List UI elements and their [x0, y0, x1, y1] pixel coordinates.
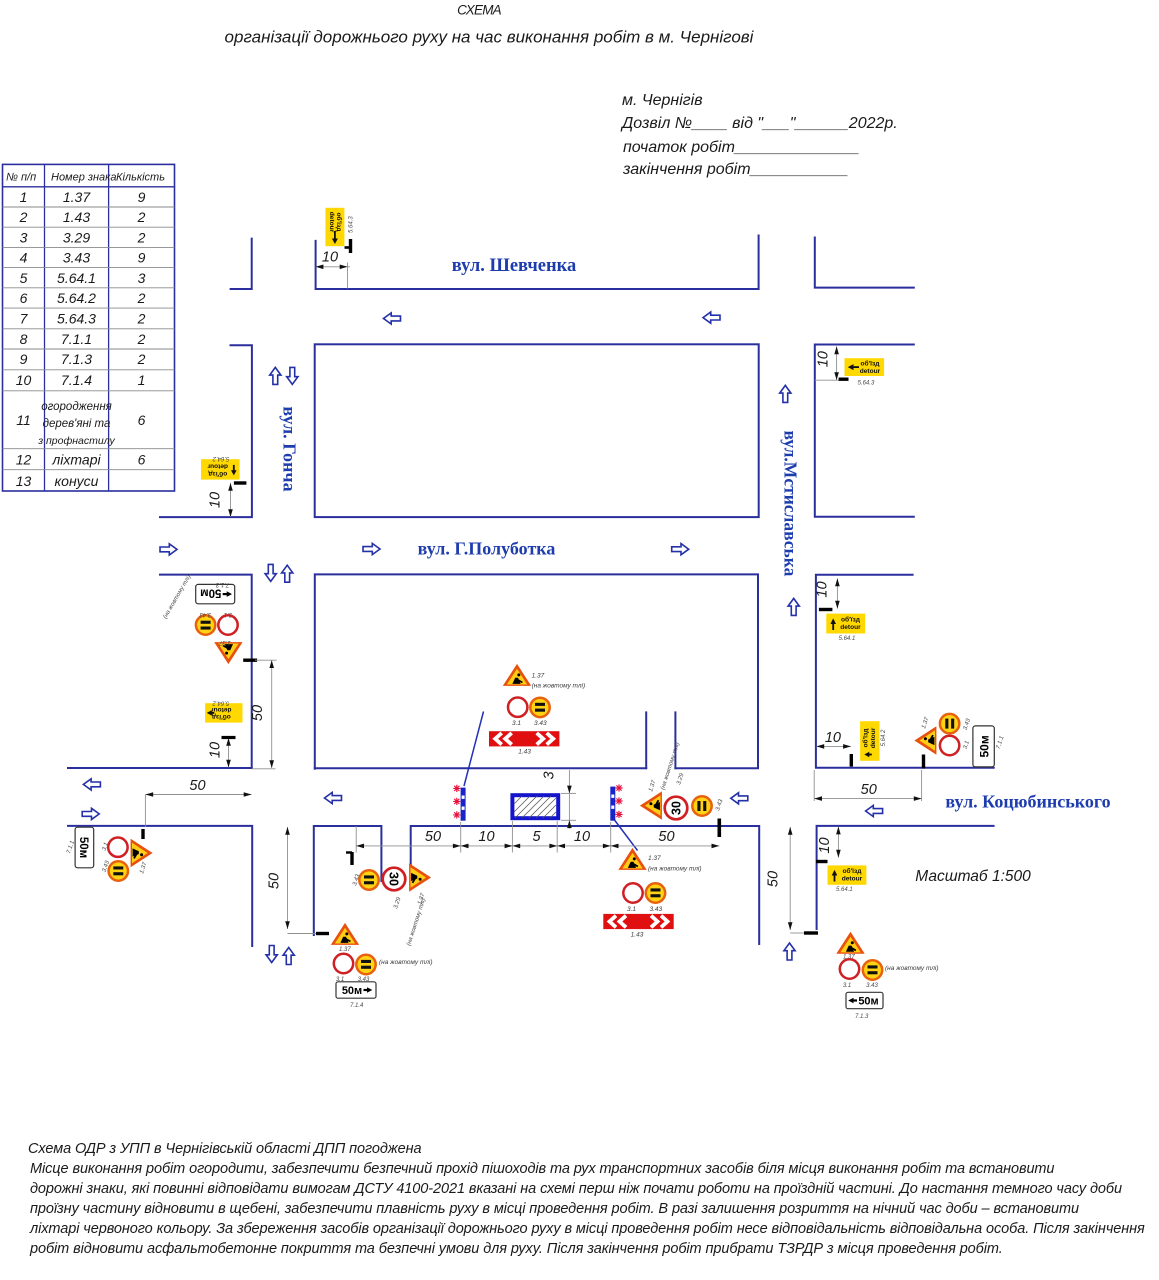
svg-text:Дозвіл №____ від "___"______2: Дозвіл №____ від "___"______2022р.	[620, 115, 898, 132]
svg-text:(на жовтому тлі): (на жовтому тлі)	[532, 682, 586, 690]
svg-text:10: 10	[574, 829, 590, 845]
svg-text:5.64.1: 5.64.1	[836, 887, 853, 893]
svg-text:вул. Коцюбинського: вул. Коцюбинського	[945, 792, 1110, 812]
svg-text:5.64.3: 5.64.3	[57, 310, 96, 326]
svg-text:організації дорожнього руху на: організації дорожнього руху на час викон…	[225, 28, 755, 47]
svg-text:1.37: 1.37	[532, 673, 545, 680]
svg-text:Місце виконання робіт огородит: Місце виконання робіт огородити, забезпе…	[30, 1161, 1054, 1177]
svg-text:50м: 50м	[342, 985, 362, 997]
svg-text:ліхтарі червоного кольору. За: ліхтарі червоного кольору. За збереження…	[29, 1221, 1145, 1237]
svg-text:дорожні знаки, які повинні від: дорожні знаки, які повинні відповідати в…	[30, 1181, 1122, 1197]
svg-text:2: 2	[19, 209, 28, 225]
svg-text:2: 2	[137, 229, 146, 245]
svg-text:5.64.1: 5.64.1	[839, 636, 856, 642]
svg-text:50: 50	[766, 871, 782, 887]
svg-text:вул.Мстиславська: вул.Мстиславська	[781, 430, 801, 576]
svg-text:об'їзд: об'їзд	[335, 213, 343, 233]
svg-text:50: 50	[250, 705, 266, 721]
svg-text:№ п/п: № п/п	[6, 172, 36, 184]
svg-text:вул. Шевченка: вул. Шевченка	[452, 256, 577, 276]
svg-text:3.1: 3.1	[627, 906, 636, 913]
svg-text:detour: detour	[328, 212, 335, 233]
svg-text:7.1.4: 7.1.4	[350, 1003, 364, 1009]
svg-text:4: 4	[20, 250, 28, 266]
svg-text:10: 10	[817, 837, 833, 853]
svg-text:Схема ОДР з УПП в Чернігівські: Схема ОДР з УПП в Чернігівській області …	[28, 1141, 422, 1157]
svg-text:1.43: 1.43	[631, 932, 644, 939]
svg-text:7.1.3: 7.1.3	[855, 1014, 869, 1020]
svg-text:Кількість: Кількість	[116, 172, 165, 184]
svg-text:50м: 50м	[858, 996, 878, 1008]
svg-text:detour: detour	[870, 727, 877, 748]
svg-text:detour: detour	[840, 624, 861, 631]
svg-text:3.1: 3.1	[224, 611, 232, 617]
svg-text:50м: 50м	[77, 837, 89, 858]
svg-text:об'їзд: об'їзд	[843, 867, 863, 875]
svg-text:огородження: огородження	[41, 401, 112, 413]
svg-text:detour: detour	[207, 463, 228, 470]
svg-text:9: 9	[138, 250, 146, 266]
svg-text:13: 13	[16, 473, 32, 489]
svg-text:50: 50	[658, 829, 674, 845]
svg-text:50м: 50м	[200, 587, 221, 599]
svg-text:12: 12	[16, 452, 32, 468]
svg-text:5.64.2: 5.64.2	[212, 700, 229, 706]
svg-text:9: 9	[20, 351, 28, 367]
svg-text:10: 10	[208, 742, 224, 758]
svg-text:10: 10	[16, 372, 32, 388]
svg-text:3.43: 3.43	[534, 720, 547, 727]
svg-text:10: 10	[322, 250, 338, 266]
svg-text:7.1.3: 7.1.3	[61, 351, 92, 367]
svg-text:10: 10	[825, 730, 841, 746]
svg-text:6: 6	[20, 290, 28, 306]
svg-text:50: 50	[425, 829, 441, 845]
svg-text:2: 2	[137, 351, 146, 367]
svg-text:5.64.2: 5.64.2	[212, 455, 229, 461]
svg-text:1.37: 1.37	[648, 855, 661, 862]
svg-text:3: 3	[20, 229, 28, 245]
svg-text:об'їзд: об'їзд	[211, 713, 231, 721]
svg-text:50: 50	[189, 778, 205, 794]
svg-text:10: 10	[478, 829, 494, 845]
svg-text:1.43: 1.43	[63, 209, 90, 225]
svg-text:(на жовтому тлі): (на жовтому тлі)	[885, 964, 939, 972]
svg-text:1.37: 1.37	[63, 189, 91, 205]
svg-text:5: 5	[532, 829, 541, 845]
svg-text:50: 50	[861, 782, 877, 798]
svg-text:об'їзд: об'їзд	[841, 616, 861, 624]
svg-text:об'їзд: об'їзд	[862, 728, 870, 748]
svg-text:2: 2	[137, 209, 146, 225]
svg-text:СХЕМА: СХЕМА	[457, 3, 502, 18]
svg-text:50: 50	[267, 873, 283, 889]
svg-text:2: 2	[137, 310, 146, 326]
svg-text:5.64.2: 5.64.2	[881, 729, 887, 746]
svg-text:1.37: 1.37	[339, 947, 351, 953]
svg-text:3.1: 3.1	[512, 720, 521, 727]
svg-text:5.64.1: 5.64.1	[57, 270, 96, 286]
svg-text:7.1.3: 7.1.3	[215, 581, 229, 587]
svg-text:5.64.3: 5.64.3	[858, 381, 875, 387]
svg-text:Номер знака: Номер знака	[51, 172, 117, 184]
svg-text:конуси: конуси	[55, 473, 99, 489]
svg-text:3.43: 3.43	[63, 250, 90, 266]
svg-text:закінчення робіт___________: закінчення робіт___________	[622, 161, 848, 178]
svg-text:3.1: 3.1	[843, 983, 851, 989]
svg-text:3.43: 3.43	[199, 611, 211, 617]
svg-text:1.43: 1.43	[518, 748, 531, 755]
svg-text:1: 1	[20, 189, 28, 205]
svg-text:8: 8	[20, 331, 28, 347]
svg-text:об'їзд: об'їзд	[207, 470, 227, 478]
svg-text:Масштаб 1:500: Масштаб 1:500	[915, 868, 1031, 885]
svg-text:м. Чернігів: м. Чернігів	[622, 92, 703, 109]
svg-text:дерев'яні та: дерев'яні та	[43, 418, 111, 430]
svg-text:6: 6	[138, 452, 146, 468]
svg-text:5.64.2: 5.64.2	[57, 290, 96, 306]
svg-text:50м: 50м	[977, 735, 991, 757]
svg-text:вул. Г.Полуботка: вул. Г.Полуботка	[418, 539, 556, 559]
svg-text:6: 6	[138, 412, 146, 428]
svg-text:3: 3	[138, 270, 146, 286]
svg-text:10: 10	[815, 581, 831, 597]
svg-text:10: 10	[208, 492, 224, 508]
svg-text:об'їзд: об'їзд	[861, 360, 881, 368]
svg-text:(на жовтому тлі): (на жовтому тлі)	[648, 865, 702, 873]
svg-text:3.43: 3.43	[866, 983, 878, 989]
svg-text:5.64.3: 5.64.3	[349, 216, 355, 233]
svg-text:3.29: 3.29	[63, 229, 90, 245]
svg-text:початок робіт______________: початок робіт______________	[623, 139, 859, 156]
svg-text:5: 5	[20, 270, 28, 286]
svg-text:3.43: 3.43	[649, 906, 662, 913]
svg-text:7: 7	[20, 310, 29, 326]
svg-text:1.37: 1.37	[218, 639, 230, 645]
svg-text:7.1.1: 7.1.1	[61, 331, 92, 347]
svg-text:з профнастилу: з профнастилу	[37, 435, 115, 447]
svg-text:2: 2	[137, 331, 146, 347]
svg-text:9: 9	[138, 189, 146, 205]
svg-text:3: 3	[542, 771, 558, 779]
svg-text:7.1.4: 7.1.4	[61, 372, 92, 388]
svg-text:detour: detour	[860, 368, 881, 375]
svg-text:2: 2	[137, 290, 146, 306]
svg-text:11: 11	[16, 412, 31, 428]
svg-text:вул. Гонча: вул. Гонча	[280, 406, 300, 491]
svg-text:(на жовтому тлі): (на жовтому тлі)	[379, 958, 433, 966]
svg-text:ліхтарі: ліхтарі	[51, 452, 101, 468]
svg-text:проїзну частину відновити в ще: проїзну частину відновити в щебені, забе…	[30, 1201, 1079, 1217]
svg-text:detour: detour	[211, 706, 232, 713]
svg-text:робіт відновити асфальтобетонн: робіт відновити асфальтобетонне покриття…	[29, 1241, 1003, 1257]
svg-text:detour: detour	[842, 876, 863, 883]
svg-text:10: 10	[816, 351, 832, 367]
svg-text:1: 1	[138, 372, 146, 388]
